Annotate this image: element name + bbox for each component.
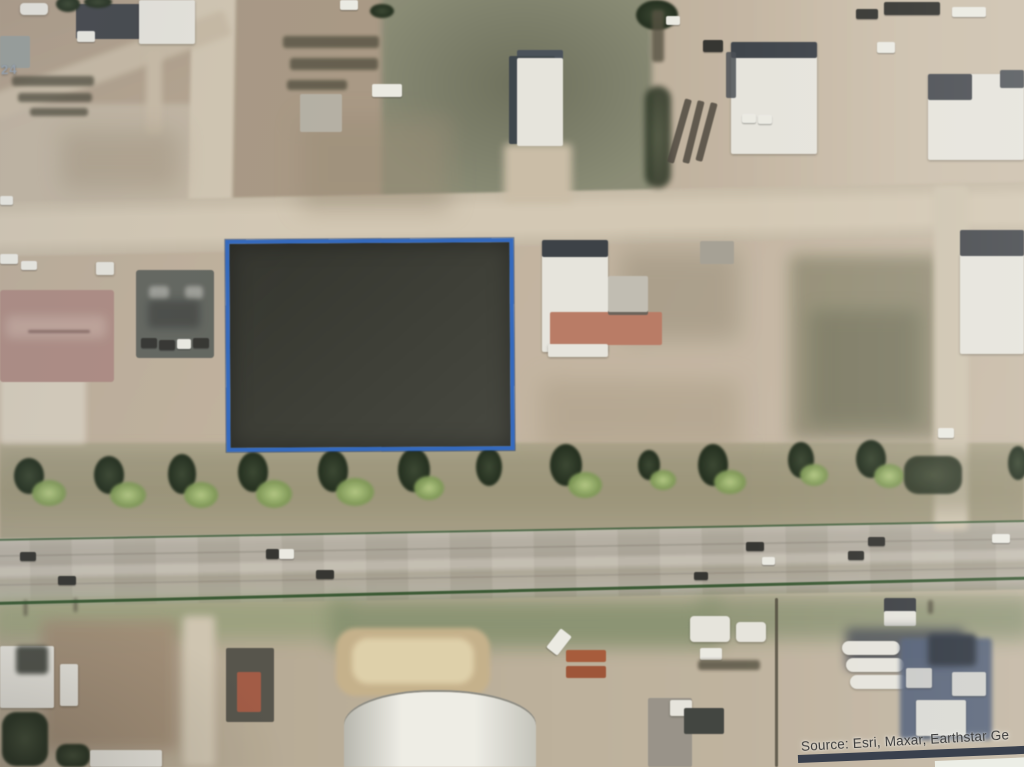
field-shed-white xyxy=(517,58,563,146)
fence-line xyxy=(775,598,778,767)
tank-cylinder xyxy=(846,658,904,672)
equipment-white xyxy=(736,622,766,642)
roof-shadow xyxy=(542,240,608,257)
roof-gable-shadow xyxy=(148,300,200,328)
tree-foliage xyxy=(568,472,602,498)
tree xyxy=(56,744,90,767)
truck-dark xyxy=(856,9,878,19)
dark-field-patch xyxy=(810,310,920,425)
junk-row xyxy=(698,660,760,670)
path-vertical xyxy=(183,616,215,767)
equipment-row xyxy=(290,58,378,70)
roof-shadow xyxy=(731,42,817,58)
building-white xyxy=(960,254,1024,354)
roof-dark-blob xyxy=(16,646,48,674)
red-roof-section xyxy=(550,312,662,345)
white-strip xyxy=(548,344,608,357)
dirt-smudge xyxy=(540,380,740,450)
truck-white xyxy=(279,549,294,559)
pole-mark xyxy=(928,600,933,614)
building-dark xyxy=(684,708,724,734)
junk-row xyxy=(30,108,88,116)
shed-small xyxy=(96,262,114,275)
field-driveway xyxy=(504,144,572,202)
tree-foliage xyxy=(184,482,218,508)
building-white xyxy=(139,0,195,44)
shed-white xyxy=(60,664,78,706)
car-dark xyxy=(703,40,723,52)
equipment-white xyxy=(690,616,730,642)
roof-ridge xyxy=(28,330,90,333)
shrub-mass xyxy=(904,456,962,494)
roof-light-patch xyxy=(149,286,169,299)
car-white xyxy=(0,254,18,264)
roof-facet xyxy=(6,316,106,338)
car-dark xyxy=(848,551,864,560)
car-dark xyxy=(746,542,764,551)
car-white xyxy=(938,428,954,438)
roof-shadow xyxy=(960,230,1024,256)
tree xyxy=(2,712,48,766)
sand-pit-inner xyxy=(352,638,474,684)
tree-foliage xyxy=(256,480,292,508)
tree-foliage xyxy=(874,464,904,488)
car-white xyxy=(742,114,756,123)
truck-dark xyxy=(266,549,279,559)
gray-annex xyxy=(608,276,648,312)
junk-row xyxy=(18,93,92,102)
car-white xyxy=(758,115,772,124)
truck-white xyxy=(952,7,986,17)
tree xyxy=(1008,446,1024,480)
car-white xyxy=(0,196,13,205)
tree-foliage xyxy=(336,478,374,506)
tree-foliage xyxy=(110,482,146,508)
car-white xyxy=(340,0,358,10)
trailer-white xyxy=(20,3,48,15)
concrete-pad xyxy=(0,376,86,444)
property-parcel-highlight xyxy=(225,238,514,452)
car-dark xyxy=(193,338,209,348)
car-white xyxy=(21,261,37,270)
quonset-building xyxy=(344,692,536,767)
shed-gray xyxy=(300,94,342,132)
car-white xyxy=(992,534,1010,543)
plant-white xyxy=(952,672,986,696)
tree-foliage xyxy=(650,470,676,490)
shed-gray xyxy=(700,241,734,264)
shed-white-dark-roof xyxy=(884,598,916,626)
plant-white xyxy=(906,668,932,688)
van-white xyxy=(77,31,95,42)
tank-cylinder xyxy=(842,641,900,655)
aerial-map-photo: 24 Source: Esri, Maxar, Earthstar Ge xyxy=(0,0,1024,767)
truck-dark xyxy=(884,2,940,15)
equipment-row xyxy=(283,36,379,48)
tree-foliage xyxy=(714,470,746,494)
roof-shadow xyxy=(1000,70,1024,88)
junk-row xyxy=(12,76,94,86)
tree-foliage xyxy=(800,464,828,486)
car-dark xyxy=(694,572,708,580)
car-dark xyxy=(20,552,36,561)
car-white xyxy=(762,557,775,565)
orange-containers xyxy=(566,650,606,662)
street-number-label: 24 xyxy=(1,62,18,78)
car-white xyxy=(666,16,680,25)
tree-foliage xyxy=(32,480,66,506)
tree xyxy=(370,4,394,18)
car-dark xyxy=(159,340,175,350)
tree-foliage xyxy=(414,476,444,500)
log-pile xyxy=(652,10,664,62)
plant-dark-top xyxy=(928,634,976,666)
roof-light-patch xyxy=(185,286,203,299)
equipment-white xyxy=(700,648,722,660)
satellite-imagery: 24 xyxy=(0,0,1024,767)
dirt-smudge xyxy=(60,130,180,190)
roof-shadow xyxy=(928,74,972,100)
building-white xyxy=(731,42,817,154)
tree xyxy=(476,448,502,486)
car-dark xyxy=(141,338,157,348)
car-white xyxy=(177,339,191,349)
car-white xyxy=(877,42,895,53)
car-dark xyxy=(316,570,334,579)
car-dark xyxy=(868,537,885,546)
car-dark xyxy=(58,576,76,585)
equipment-row xyxy=(287,80,347,90)
truck-white xyxy=(372,84,402,97)
tree-line xyxy=(645,86,671,188)
dirt-road-stub xyxy=(146,50,162,135)
roof-shadow xyxy=(726,52,736,98)
red-container xyxy=(237,672,261,712)
building-white xyxy=(90,750,162,767)
